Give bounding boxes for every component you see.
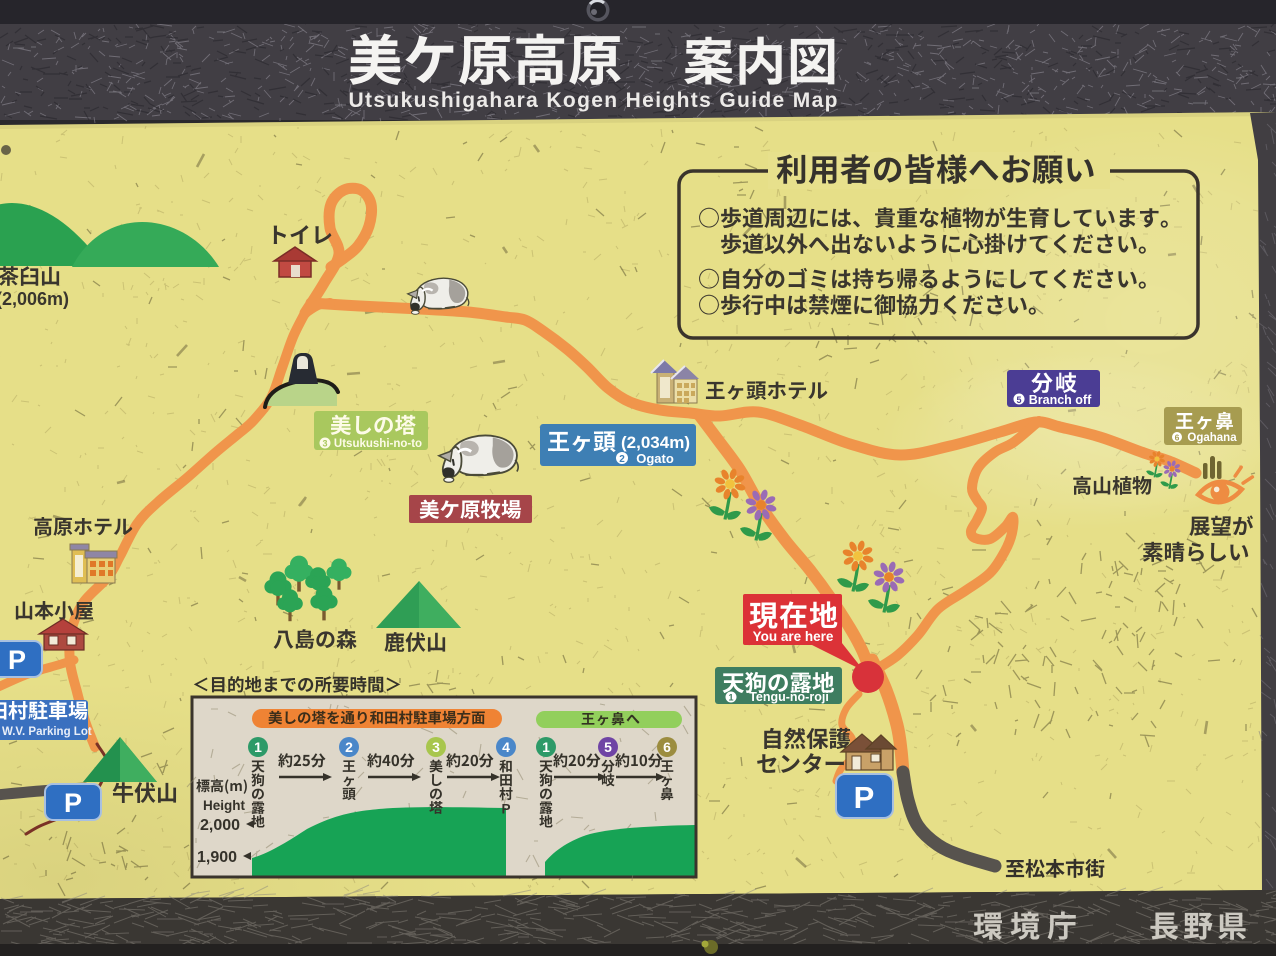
- svg-text:Utsukushigahara Kogen Heights: Utsukushigahara Kogen Heights Guide Map: [349, 89, 838, 112]
- svg-text:Height: Height: [203, 798, 246, 813]
- svg-text:P: P: [8, 645, 26, 675]
- svg-text:2: 2: [345, 739, 353, 755]
- svg-text:1: 1: [254, 739, 262, 755]
- svg-text:Tengu-no-roji: Tengu-no-roji: [749, 690, 829, 704]
- svg-text:You are here: You are here: [753, 629, 834, 644]
- svg-text:4: 4: [502, 739, 510, 755]
- svg-text:P: P: [854, 780, 875, 815]
- svg-text:Ogato: Ogato: [636, 451, 674, 466]
- svg-text:1: 1: [542, 739, 550, 755]
- svg-text:2,000: 2,000: [200, 817, 240, 834]
- svg-text:6: 6: [1175, 433, 1180, 443]
- svg-text:1: 1: [728, 693, 733, 703]
- svg-text:P: P: [64, 788, 82, 818]
- svg-text:3: 3: [432, 739, 440, 755]
- svg-text:2: 2: [619, 454, 625, 465]
- svg-text:1,900: 1,900: [197, 849, 237, 866]
- svg-text:W.V. Parking Lot: W.V. Parking Lot: [2, 726, 92, 738]
- svg-text:6: 6: [663, 739, 671, 755]
- svg-text:5: 5: [604, 739, 612, 755]
- svg-text:P: P: [501, 801, 510, 816]
- svg-text:5: 5: [1016, 395, 1021, 405]
- svg-text:Ogahana: Ogahana: [1187, 432, 1237, 444]
- svg-text:3: 3: [322, 439, 327, 449]
- svg-text:(2,006m): (2,006m): [0, 289, 69, 309]
- svg-text:Branch off: Branch off: [1029, 393, 1092, 407]
- svg-text:Utsukushi-no-to: Utsukushi-no-to: [334, 438, 422, 450]
- svg-text:(2,034m): (2,034m): [621, 433, 690, 452]
